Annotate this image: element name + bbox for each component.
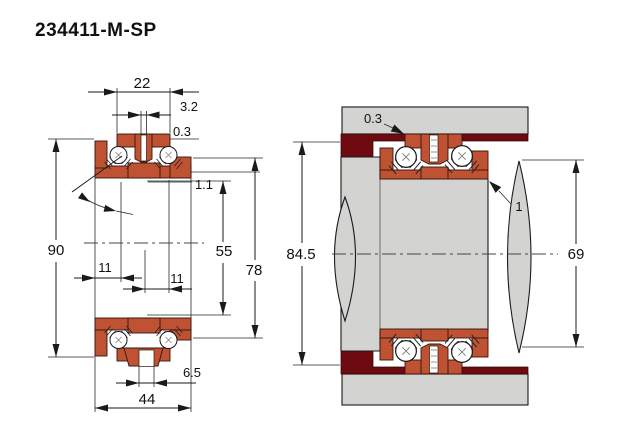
dim-bottom-slot: 6.5: [116, 365, 201, 387]
dim-text-84-5: 84.5: [286, 246, 315, 263]
dim-shoulder-diameter: 78: [246, 158, 263, 338]
left-bottom-row: [95, 318, 191, 367]
bottom-right-spacer-ring: [462, 367, 528, 374]
housing-washer-left-shoulder: [95, 330, 107, 356]
housing-washer-mid: [128, 318, 160, 333]
dim-text-3-2: 3.2: [180, 99, 198, 114]
dim-washer-od: 84.5: [286, 142, 340, 365]
shaft-break-symbol-right: [508, 161, 532, 353]
dim-top-slot: 3.2: [112, 99, 198, 119]
technical-drawing: 234411-M-SP: [0, 0, 640, 440]
top-left-spacer-ring: [341, 134, 405, 157]
dim-outer-diameter: 90: [48, 139, 65, 357]
bottom-left-spacer-ring: [341, 351, 405, 374]
dim-text-69: 69: [568, 246, 585, 263]
lubrication-slot: [141, 135, 147, 161]
dim-text-11a: 11: [98, 260, 112, 275]
right-view-mounting-section: 0.3 1 84.5 69: [286, 107, 584, 405]
dim-total-width: 44: [95, 391, 191, 412]
dim-text-90: 90: [48, 242, 65, 259]
housing-washer-left-shoulder: [380, 148, 393, 170]
dim-text-6-5: 6.5: [183, 365, 201, 380]
dim-bore: 55: [216, 181, 233, 315]
dim-text-55: 55: [216, 243, 233, 260]
bearing-drawing-page: 234411-M-SP: [0, 0, 640, 440]
callout-1-label: 1: [515, 199, 522, 214]
housing-washer-left-shoulder: [95, 141, 107, 168]
part-number-title: 234411-M-SP: [35, 20, 157, 41]
dim-text-11b: 11: [170, 271, 184, 286]
housing-washer-left-shoulder: [380, 338, 393, 360]
housing-washer-right-shoulder: [472, 338, 488, 357]
step-label: 1.1: [195, 177, 213, 192]
top-right-spacer-ring: [462, 134, 528, 141]
bottom-housing-block: [342, 374, 528, 405]
left-view-bearing-section: 22 3.2 0.3 1.1 90 55: [48, 75, 263, 412]
left-top-row: [95, 134, 191, 178]
dim-text-22: 22: [134, 75, 151, 92]
housing-washer-right-shoulder: [472, 151, 488, 170]
dim-text-44: 44: [139, 391, 156, 408]
housing-washer-mid: [421, 329, 448, 341]
housing-washer-mid: [128, 163, 160, 178]
housing-washer-mid: [421, 167, 448, 179]
dim-text-78: 78: [246, 262, 263, 279]
dim-washer-width: 22: [88, 75, 199, 96]
bottom-slot: [139, 350, 154, 367]
dim-row-offset-right: 11: [123, 271, 192, 293]
chamfer-label-left: 0.3: [173, 124, 191, 139]
dim-row-offset-left: 11: [74, 260, 142, 282]
chamfer-label-right: 0.3: [364, 111, 382, 126]
